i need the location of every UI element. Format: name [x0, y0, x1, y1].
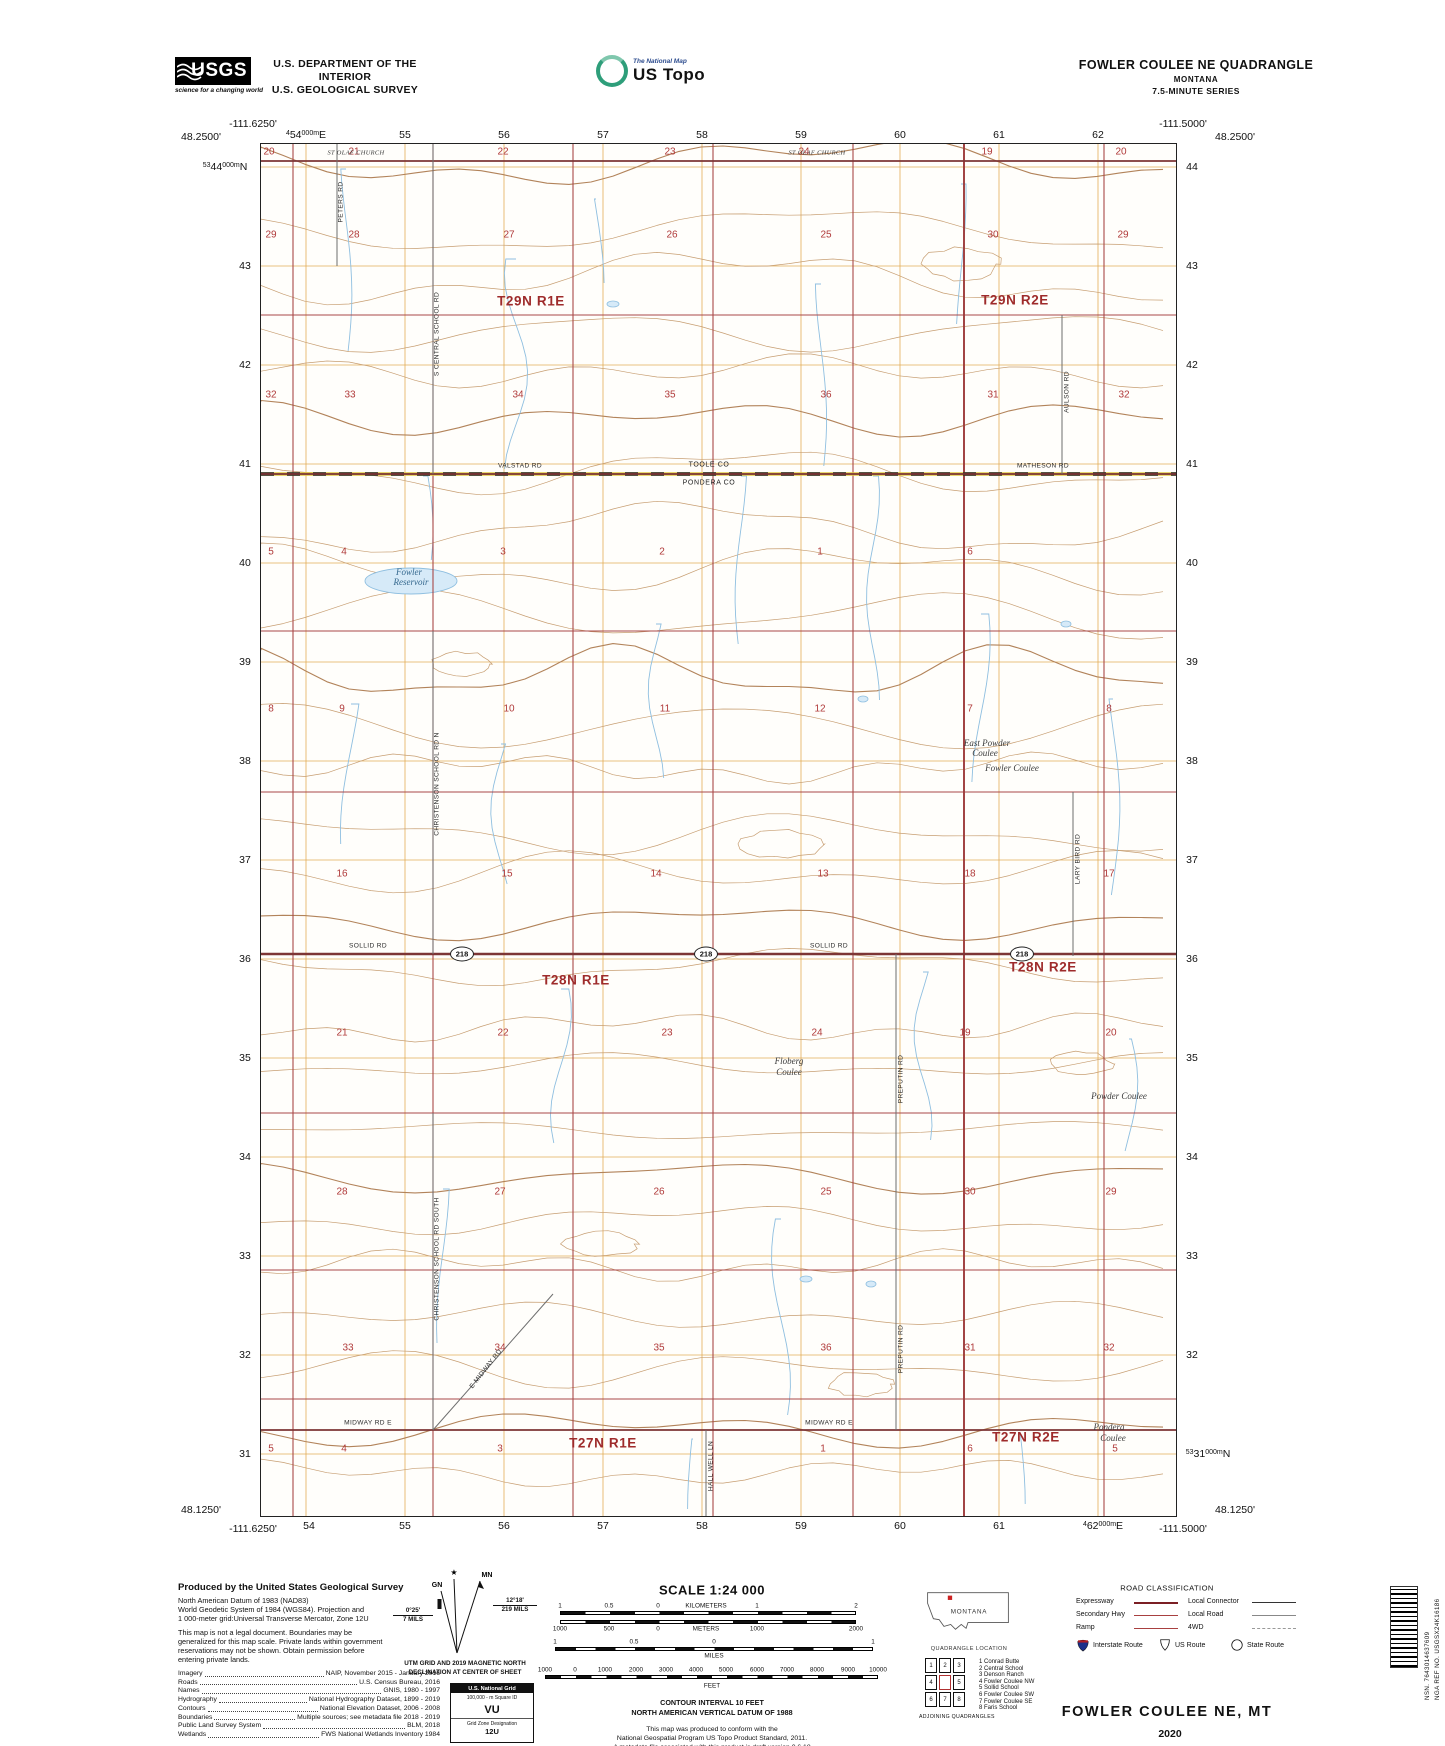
grid-coordinate-label: 59 [795, 129, 807, 141]
adjoining-cell: 2 [939, 1658, 951, 1673]
grid-coordinate-label: 38 [239, 755, 251, 767]
scale-label: 1000 [598, 1667, 612, 1674]
standard-note-2: National Geospatial Program US Topo Prod… [617, 1735, 807, 1742]
adjoining-cell: 1 [925, 1658, 937, 1673]
scale-label: 5000 [719, 1667, 733, 1674]
quadrangle-name: FOWLER COULEE NE QUADRANGLE [1040, 58, 1352, 72]
legend-stateroute-label: State Route [1247, 1642, 1284, 1649]
usng-square-label: 100,000 - m Square ID [451, 1695, 533, 1701]
scale-bar-kilometers [560, 1611, 856, 1615]
usgs-topo-sheet: USGS science for a changing world U.S. D… [0, 0, 1445, 1746]
gn-mils: 7 MILS [393, 1616, 433, 1624]
svg-text:GN: GN [432, 1582, 443, 1589]
adjoining-cell: 8 [953, 1692, 965, 1707]
grid-coordinate-label: 35 [239, 1052, 251, 1064]
grid-coordinate-label: 41 [239, 458, 251, 470]
dataset-row: RoadsU.S. Census Bureau, 2016 [178, 1679, 440, 1688]
quadrangle-locator: MONTANA QUADRANGLE LOCATION [922, 1586, 1014, 1656]
grid-coordinate-label: 32 [239, 1349, 251, 1361]
legend-expressway-label: Expressway [1076, 1598, 1114, 1605]
state-route-circle-icon [1230, 1638, 1244, 1652]
mn-angle: 12°18' [493, 1597, 537, 1606]
adjoining-name: 7 Fowler Coulee SE [979, 1699, 1034, 1706]
scale-label: MILES [704, 1653, 723, 1660]
topo-map: -111.6250'48.2500'454000mE55565758596061… [260, 143, 1177, 1517]
legend-ramp-label: Ramp [1076, 1624, 1095, 1631]
adjoining-name: 5 Sollid School [979, 1685, 1034, 1692]
agency-line1: U.S. DEPARTMENT OF THE INTERIOR [250, 58, 440, 84]
scale-label: 0.5 [605, 1603, 614, 1610]
locator-caption: QUADRANGLE LOCATION [931, 1646, 1008, 1652]
dataset-row: Public Land Survey SystemBLM, 2018 [178, 1722, 440, 1731]
sheet-year: 2020 [1158, 1728, 1181, 1740]
scale-label: 4000 [689, 1667, 703, 1674]
scale-label: 500 [604, 1626, 615, 1633]
grid-coordinate-label: -111.6250' [229, 1523, 277, 1535]
grid-coordinate-label: 34 [239, 1151, 251, 1163]
scale-label: 7000 [780, 1667, 794, 1674]
grid-coordinate-label: 62 [1092, 129, 1104, 141]
usgs-logo: USGS [175, 57, 251, 85]
adjoining-grid: 1 2 3 4 5 6 7 8 [925, 1658, 965, 1707]
nsn-number: NSN. 7643014637609 [1424, 1632, 1431, 1700]
grid-coordinate-label: 48.1250' [1215, 1504, 1255, 1516]
quadrangle-title-block: FOWLER COULEE NE QUADRANGLE MONTANA 7.5-… [1040, 58, 1352, 96]
usng-zone: 12U [451, 1727, 533, 1736]
scale-label: 0 [656, 1603, 660, 1610]
legend-4wd-line [1252, 1628, 1296, 1629]
grid-coordinate-label: 42 [1186, 359, 1198, 371]
dataset-row: WetlandsFWS National Wetlands Inventory … [178, 1731, 440, 1740]
grid-coordinate-label: 57 [597, 1520, 609, 1532]
scale-label: 0 [712, 1639, 716, 1646]
dataset-list: ImageryNAIP, November 2015 - January 201… [178, 1670, 440, 1740]
agency-line2: U.S. GEOLOGICAL SURVEY [250, 84, 440, 97]
grid-coordinate-label: 39 [239, 656, 251, 668]
legend-interstate-label: Interstate Route [1093, 1642, 1143, 1649]
scale-label: 6000 [750, 1667, 764, 1674]
grid-coordinate-label: 39 [1186, 656, 1198, 668]
grid-coordinate-label: 42 [239, 359, 251, 371]
usng-title: U.S. National Grid [451, 1684, 533, 1693]
grid-coordinate-label: 35 [1186, 1052, 1198, 1064]
legend-secondary-line [1134, 1615, 1178, 1616]
grid-coordinate-label: 5331000mN [1186, 1448, 1231, 1460]
scale-bar-meters [560, 1620, 856, 1624]
grid-coordinate-label: 43 [1186, 260, 1198, 272]
mn-mils: 219 MILS [493, 1606, 537, 1614]
grid-coordinate-label: 462000mE [1083, 1520, 1123, 1532]
us-route-shield-icon [1158, 1638, 1172, 1652]
legend-localroad-label: Local Road [1188, 1611, 1223, 1618]
dataset-row: NamesGNIS, 1980 - 1997 [178, 1687, 440, 1696]
adjoining-caption: ADJOINING QUADRANGLES [919, 1714, 995, 1720]
legend-secondary-label: Secondary Hwy [1076, 1611, 1125, 1618]
grid-coordinate-label: 56 [498, 129, 510, 141]
scale-label: 0 [573, 1667, 577, 1674]
usng-box: U.S. National Grid 100,000 - m Square ID… [450, 1683, 534, 1743]
grid-coordinate-label: 31 [239, 1448, 251, 1460]
grid-coordinate-label: 36 [1186, 953, 1198, 965]
scale-label: 9000 [841, 1667, 855, 1674]
grid-coordinate-label: 40 [1186, 557, 1198, 569]
grid-coordinate-label: 60 [894, 129, 906, 141]
road-classification-title: ROAD CLASSIFICATION [1120, 1584, 1214, 1593]
interstate-shield-icon [1076, 1638, 1090, 1652]
scale-label: 3000 [659, 1667, 673, 1674]
adjoining-name: 2 Central School [979, 1666, 1034, 1673]
usng-zone-label: Grid Zone Designation [451, 1718, 533, 1727]
grid-coordinate-label: 44 [1186, 161, 1198, 173]
grid-coordinate-label: 56 [498, 1520, 510, 1532]
road-classification: ROAD CLASSIFICATION Expressway Local Con… [1070, 1582, 1320, 1660]
declination-caption1: UTM GRID AND 2019 MAGNETIC NORTH [385, 1660, 545, 1667]
grid-coordinate-label: -111.6250' [229, 118, 277, 130]
scale-label: METERS [693, 1626, 720, 1633]
contour-interval-note: CONTOUR INTERVAL 10 FEET [660, 1698, 764, 1707]
legend-usroute-label: US Route [1175, 1642, 1205, 1649]
usgs-wave-icon [177, 61, 203, 81]
grid-coordinate-label: 37 [239, 854, 251, 866]
scale-label: 2000 [849, 1626, 863, 1633]
adjoining-cell: 6 [925, 1692, 937, 1707]
grid-coordinate-label: 61 [993, 129, 1005, 141]
grid-coordinate-label: 36 [239, 953, 251, 965]
grid-coordinate-label: 34 [1186, 1151, 1198, 1163]
gn-angle: 0°25' [393, 1607, 433, 1616]
adjoining-cell: 4 [925, 1675, 937, 1690]
grid-coordinate-label: 54 [303, 1520, 315, 1532]
scale-label: 1000 [538, 1667, 552, 1674]
grid-coordinate-label: 61 [993, 1520, 1005, 1532]
sheet-title: FOWLER COULEE NE, MT [1062, 1704, 1272, 1720]
grid-coordinate-label: 57 [597, 129, 609, 141]
svg-text:★: ★ [450, 1568, 457, 1577]
scale-bar-feet [545, 1675, 878, 1679]
grid-coordinate-label: 59 [795, 1520, 807, 1532]
grid-coordinate-label: 38 [1186, 755, 1198, 767]
grid-coordinate-label: 5344000mN [203, 161, 248, 173]
adjoining-cell-current [939, 1675, 951, 1690]
nga-ref-number: NGA REF NO. USGSX24K16186 [1434, 1599, 1441, 1700]
adjoining-cell: 5 [953, 1675, 965, 1690]
adjoining-cell: 3 [953, 1658, 965, 1673]
grid-coordinate-label: 48.2500' [1215, 131, 1255, 143]
usng-square-id: VU [451, 1704, 533, 1716]
svg-text:MN: MN [482, 1572, 493, 1579]
scale-label: 2 [854, 1603, 858, 1610]
scale-label: 0.5 [630, 1639, 639, 1646]
scale-label: 8000 [810, 1667, 824, 1674]
grid-coordinate-label: 43 [239, 260, 251, 272]
dataset-row: BoundariesMultiple sources; see metadata… [178, 1714, 440, 1723]
legend-4wd-label: 4WD [1188, 1624, 1204, 1631]
ustopo-logo: The National Map US Topo [596, 55, 705, 87]
legend-expressway-line [1134, 1602, 1178, 1604]
legend-ramp-line [1134, 1628, 1178, 1629]
vertical-datum-note: NORTH AMERICAN VERTICAL DATUM OF 1988 [631, 1708, 792, 1717]
scale-label: 1000 [750, 1626, 764, 1633]
adjoining-name: 1 Conrad Butte [979, 1659, 1034, 1666]
standard-note-1: This map was produced to conform with th… [646, 1726, 777, 1733]
scale-label: FEET [704, 1683, 720, 1690]
declination-diagram: ★ GN MN 0°25' 7 MILS 12°18' 219 MILS UTM… [385, 1565, 545, 1680]
adjoining-names: 1 Conrad Butte2 Central School3 Denson R… [979, 1659, 1034, 1712]
grid-coordinate-label: 55 [399, 1520, 411, 1532]
grid-coordinate-label: 41 [1186, 458, 1198, 470]
agency-heading: U.S. DEPARTMENT OF THE INTERIOR U.S. GEO… [250, 58, 440, 97]
scale-label: 2000 [629, 1667, 643, 1674]
adjoining-name: 3 Denson Ranch [979, 1672, 1034, 1679]
quadrangle-series: 7.5-MINUTE SERIES [1040, 86, 1352, 96]
scale-label: 1 [558, 1603, 562, 1610]
national-map-brand: The National Map [633, 58, 705, 65]
scale-label: 1000 [553, 1626, 567, 1633]
grid-coordinate-label: 32 [1186, 1349, 1198, 1361]
quadrangle-state: MONTANA [1040, 75, 1352, 84]
ustopo-circle-icon [596, 55, 628, 87]
grid-coordinate-label: -111.5000' [1159, 118, 1207, 130]
map-canvas [261, 144, 1176, 1516]
grid-coordinate-label: 37 [1186, 854, 1198, 866]
grid-coordinate-label: 454000mE [286, 129, 326, 141]
scale-bar-miles [555, 1647, 873, 1651]
scale-title: SCALE 1:24 000 [659, 1583, 765, 1598]
grid-coordinate-label: 58 [696, 129, 708, 141]
grid-coordinate-label: 60 [894, 1520, 906, 1532]
grid-coordinate-label: 58 [696, 1520, 708, 1532]
locator-state-label: MONTANA [951, 1609, 988, 1616]
adjoining-quadrangles: 1 2 3 4 5 6 7 8 ADJOINING QUADRANGLES 1 … [925, 1658, 1075, 1730]
grid-coordinate-label: 48.2500' [181, 131, 221, 143]
scale-label: 1 [755, 1603, 759, 1610]
declination-caption2: DECLINATION AT CENTER OF SHEET [385, 1669, 545, 1676]
barcode [1390, 1586, 1418, 1668]
scale-label: 1 [553, 1639, 557, 1646]
scale-label: 0 [656, 1626, 660, 1633]
adjoining-name: 4 Fowler Coulee NW [979, 1679, 1034, 1686]
legend-connector-label: Local Connector [1188, 1598, 1239, 1605]
grid-coordinate-label: 33 [1186, 1250, 1198, 1262]
adjoining-cell: 7 [939, 1692, 951, 1707]
grid-coordinate-label: -111.5000' [1159, 1523, 1207, 1535]
scale-label: 10000 [869, 1667, 887, 1674]
adjoining-name: 8 Faris School [979, 1705, 1034, 1712]
dataset-row: ContoursNational Elevation Dataset, 2006… [178, 1705, 440, 1714]
grid-coordinate-label: 33 [239, 1250, 251, 1262]
grid-coordinate-label: 40 [239, 557, 251, 569]
ustopo-product: US Topo [633, 65, 705, 85]
dataset-row: HydrographyNational Hydrography Dataset,… [178, 1696, 440, 1705]
legend-localroad-line [1252, 1615, 1296, 1616]
grid-coordinate-label: 55 [399, 129, 411, 141]
grid-coordinate-label: 48.1250' [181, 1504, 221, 1516]
adjoining-name: 6 Fowler Coulee SW [979, 1692, 1034, 1699]
scale-label: 1 [871, 1639, 875, 1646]
legend-connector-line [1252, 1602, 1296, 1603]
scale-label: KILOMETERS [685, 1603, 726, 1610]
